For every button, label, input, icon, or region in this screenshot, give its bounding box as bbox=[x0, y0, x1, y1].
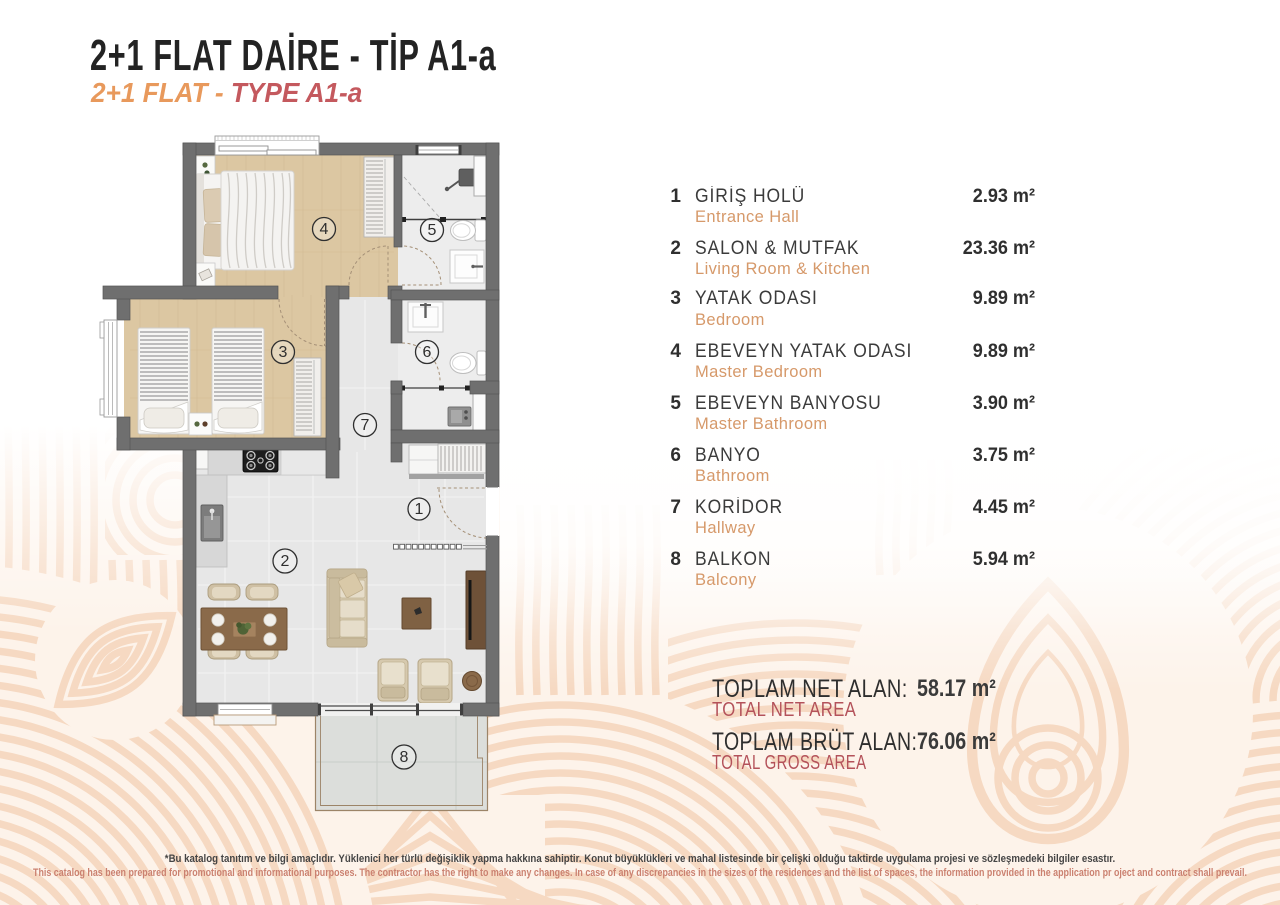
svg-text:3: 3 bbox=[279, 344, 288, 361]
svg-text:8: 8 bbox=[400, 749, 409, 766]
svg-text:6: 6 bbox=[423, 344, 432, 361]
svg-text:5: 5 bbox=[428, 222, 437, 239]
svg-text:4: 4 bbox=[320, 221, 329, 238]
svg-text:7: 7 bbox=[361, 417, 370, 434]
svg-text:2: 2 bbox=[281, 553, 290, 570]
svg-text:1: 1 bbox=[415, 501, 424, 518]
